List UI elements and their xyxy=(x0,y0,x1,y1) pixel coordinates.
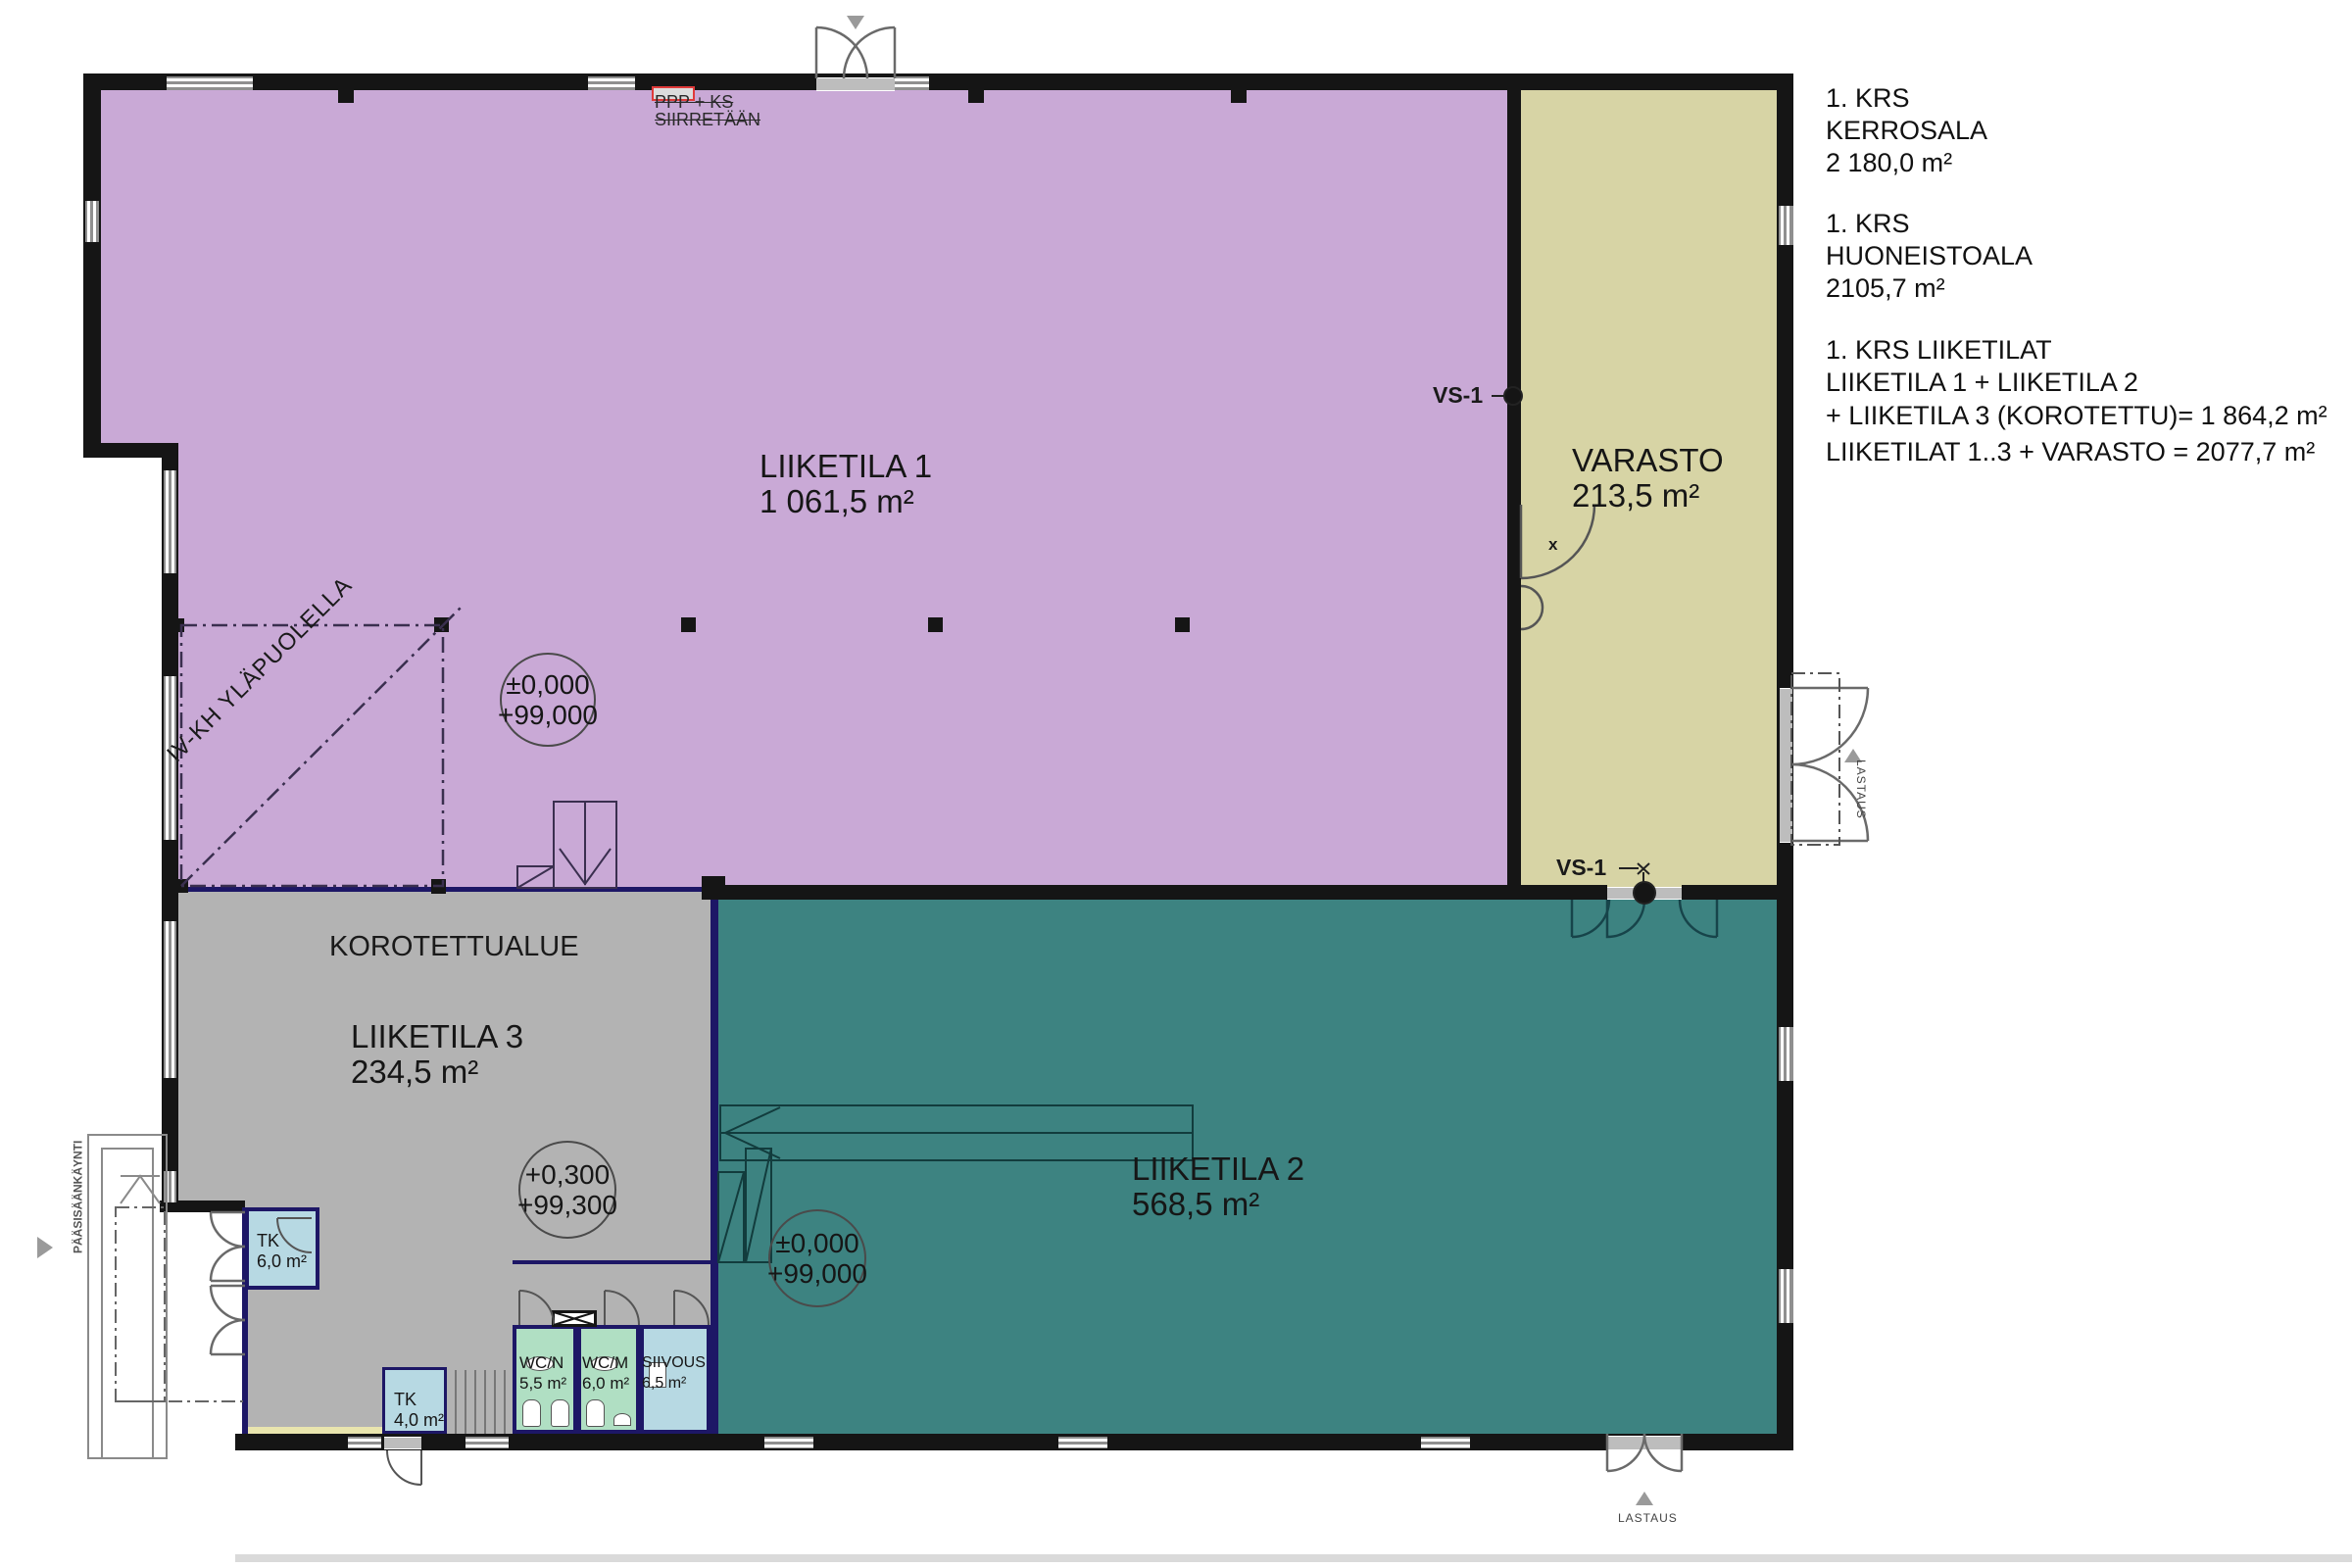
wc-doors xyxy=(277,1218,709,1485)
level-value: +99,000 xyxy=(767,1258,867,1289)
iv-kh-dashed-zone xyxy=(181,608,461,886)
room-area: 6,0 m² xyxy=(582,1373,629,1394)
loading-door-bottom-arcs xyxy=(1607,1434,1682,1471)
ppp-note-line2: SIIRRETÄÄN xyxy=(655,110,760,130)
room-area: 568,5 m² xyxy=(1132,1187,1304,1222)
room-name: WC/M xyxy=(582,1352,629,1373)
summary-line: 2 180,0 m² xyxy=(1826,147,2335,179)
level-marker-liiketila2: ±0,000 +99,000 xyxy=(768,1209,866,1307)
lastaus-bottom-arrow-icon xyxy=(1636,1492,1653,1505)
room-name: WC/N xyxy=(519,1352,566,1373)
paasisaankaynti-label: PÄÄSISÄÄNKÄYNTI xyxy=(72,1141,85,1253)
tk-small-label: TK 4,0 m² xyxy=(394,1390,444,1431)
lastaus-bottom-label: LASTAUS xyxy=(1618,1511,1678,1525)
tk-big-label: TK 6,0 m² xyxy=(257,1231,307,1272)
varasto-door xyxy=(1521,505,1594,629)
vs1-label-bottom: VS-1 xyxy=(1556,855,1606,881)
main-entrance-doors xyxy=(211,1212,245,1354)
summary-line: LIIKETILA 1 + LIIKETILA 2 xyxy=(1826,367,2335,399)
summary-block-kerrosala: 1. KRS KERROSALA 2 180,0 m² xyxy=(1826,82,2335,179)
summary-line: 1. KRS xyxy=(1826,208,2335,240)
room-area: 6,5 m² xyxy=(642,1373,706,1394)
top-entrance-arrow-icon xyxy=(847,16,864,29)
room-area: 1 061,5 m² xyxy=(759,484,932,519)
room-name: TK xyxy=(394,1390,444,1410)
liiketila3-label: LIIKETILA 3 234,5 m² xyxy=(351,1019,523,1090)
shaft-x xyxy=(554,1312,595,1325)
summary-line: 1. KRS LIIKETILAT xyxy=(1826,334,2335,367)
liiketila2-label: LIIKETILA 2 568,5 m² xyxy=(1132,1151,1304,1222)
room-name: LIIKETILA 2 xyxy=(1132,1151,1304,1187)
room-area: 5,5 m² xyxy=(519,1373,566,1394)
level-marker-liiketila3: +0,300 +99,300 xyxy=(518,1141,616,1239)
floor-plan-canvas: LIIKETILA 1 1 061,5 m² VARASTO 213,5 m² … xyxy=(0,0,2352,1568)
varasto-label: VARASTO 213,5 m² xyxy=(1572,443,1724,514)
summary-block-huoneistoala: 1. KRS HUONEISTOALA 2105,7 m² xyxy=(1826,208,2335,305)
site-line xyxy=(235,1554,2352,1562)
room-area: 213,5 m² xyxy=(1572,478,1724,514)
summary-line: + LIIKETILA 3 (KOROTETTU)= 1 864,2 m² xyxy=(1826,399,2335,433)
wcn-label: WC/N 5,5 m² xyxy=(519,1352,566,1394)
entrance-door-top xyxy=(816,27,895,78)
room-name: SIIVOUS xyxy=(642,1352,706,1373)
entrance-canopy xyxy=(88,1135,245,1458)
level-value: +99,000 xyxy=(498,700,598,730)
lastaus-right-label: LASTAUS xyxy=(1854,759,1868,819)
room-name: TK xyxy=(257,1231,307,1251)
level-value: +0,300 xyxy=(525,1159,610,1190)
stair-structure xyxy=(517,802,616,888)
vs1-door-arcs xyxy=(1572,900,1717,937)
room-name: VARASTO xyxy=(1572,443,1724,478)
liiketila1-label: LIIKETILA 1 1 061,5 m² xyxy=(759,449,932,519)
summary-line: 2105,7 m² xyxy=(1826,272,2335,305)
varasto-door-x: x xyxy=(1548,535,1557,555)
summary-line: KERROSALA xyxy=(1826,115,2335,147)
summary-line: LIIKETILAT 1..3 + VARASTO = 2077,7 m² xyxy=(1826,433,2335,470)
entrance-arrow-icon xyxy=(37,1237,53,1258)
room-area: 4,0 m² xyxy=(394,1410,444,1431)
room-name: LIIKETILA 3 xyxy=(351,1019,523,1054)
level-value: ±0,000 xyxy=(775,1228,858,1258)
korotettualue-label: KOROTETTUALUE xyxy=(329,931,579,963)
level-marker-liiketila1: ±0,000 +99,000 xyxy=(500,653,596,747)
level-value: +99,300 xyxy=(517,1190,617,1220)
summary-block-liiketilat: 1. KRS LIIKETILAT LIIKETILA 1 + LIIKETIL… xyxy=(1826,334,2335,470)
area-summary: 1. KRS KERROSALA 2 180,0 m² 1. KRS HUONE… xyxy=(1826,82,2335,470)
summary-line: HUONEISTOALA xyxy=(1826,240,2335,272)
room-area: 234,5 m² xyxy=(351,1054,523,1090)
summary-line: 1. KRS xyxy=(1826,82,2335,115)
siivous-label: SIIVOUS 6,5 m² xyxy=(642,1352,706,1394)
room-name: LIIKETILA 1 xyxy=(759,449,932,484)
room-area: 6,0 m² xyxy=(257,1251,307,1272)
level-value: ±0,000 xyxy=(506,669,589,700)
wcm-label: WC/M 6,0 m² xyxy=(582,1352,629,1394)
vs1-label-top: VS-1 xyxy=(1433,382,1483,409)
